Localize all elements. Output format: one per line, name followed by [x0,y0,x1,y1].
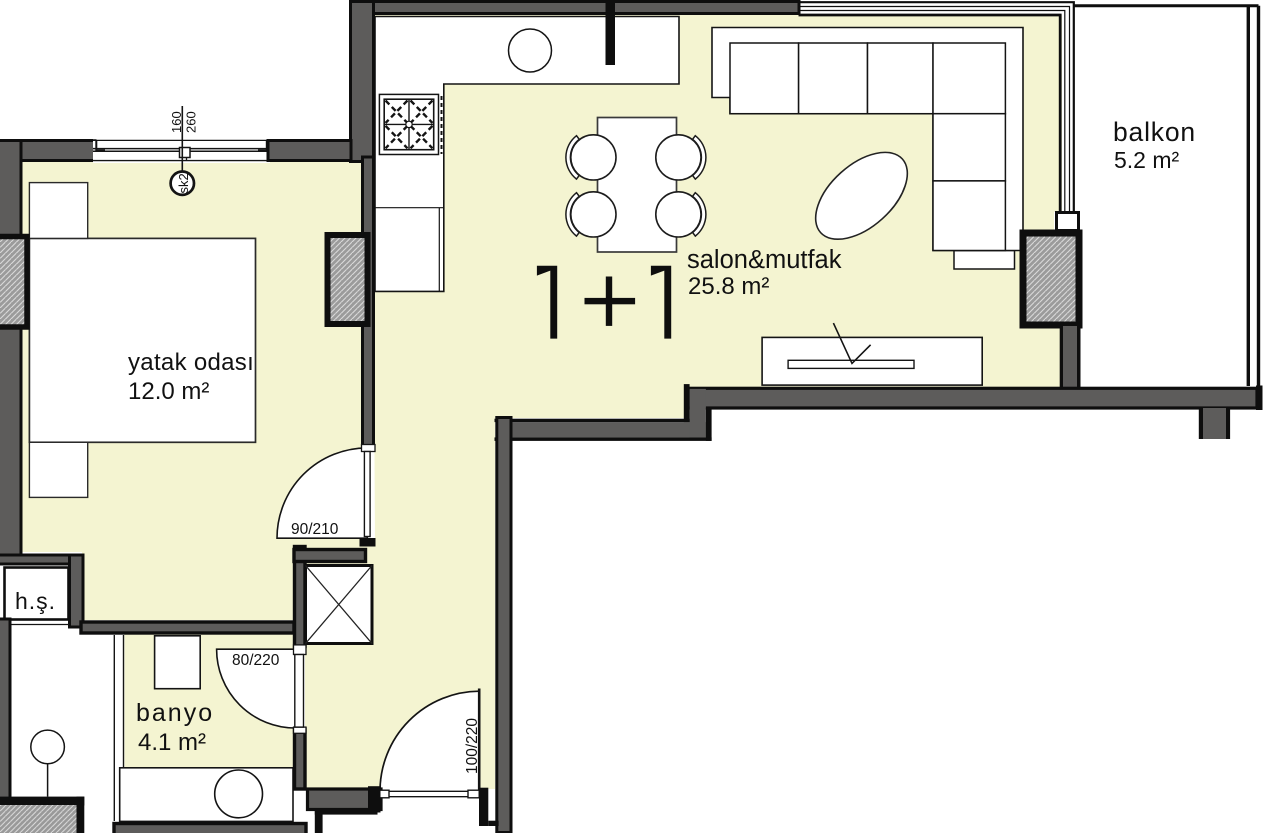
svg-text:yatak odası: yatak odası [128,349,254,376]
svg-text:h.ş.: h.ş. [15,588,56,614]
svg-text:25.8 m²: 25.8 m² [688,273,769,300]
svg-text:banyo: banyo [136,699,214,727]
svg-text:160: 160 [169,111,184,133]
svg-text:80/220: 80/220 [232,652,280,669]
svg-text:5.2 m²: 5.2 m² [1114,147,1180,173]
svg-text:12.0 m²: 12.0 m² [128,378,209,405]
svg-text:260: 260 [184,111,199,133]
svg-text:balkon: balkon [1113,117,1196,147]
svg-text:100/220: 100/220 [464,718,481,774]
svg-text:4.1 m²: 4.1 m² [138,729,206,756]
svg-text:sk2: sk2 [176,173,191,193]
svg-text:90/210: 90/210 [291,521,339,538]
svg-text:salon&mutfak: salon&mutfak [687,246,842,274]
